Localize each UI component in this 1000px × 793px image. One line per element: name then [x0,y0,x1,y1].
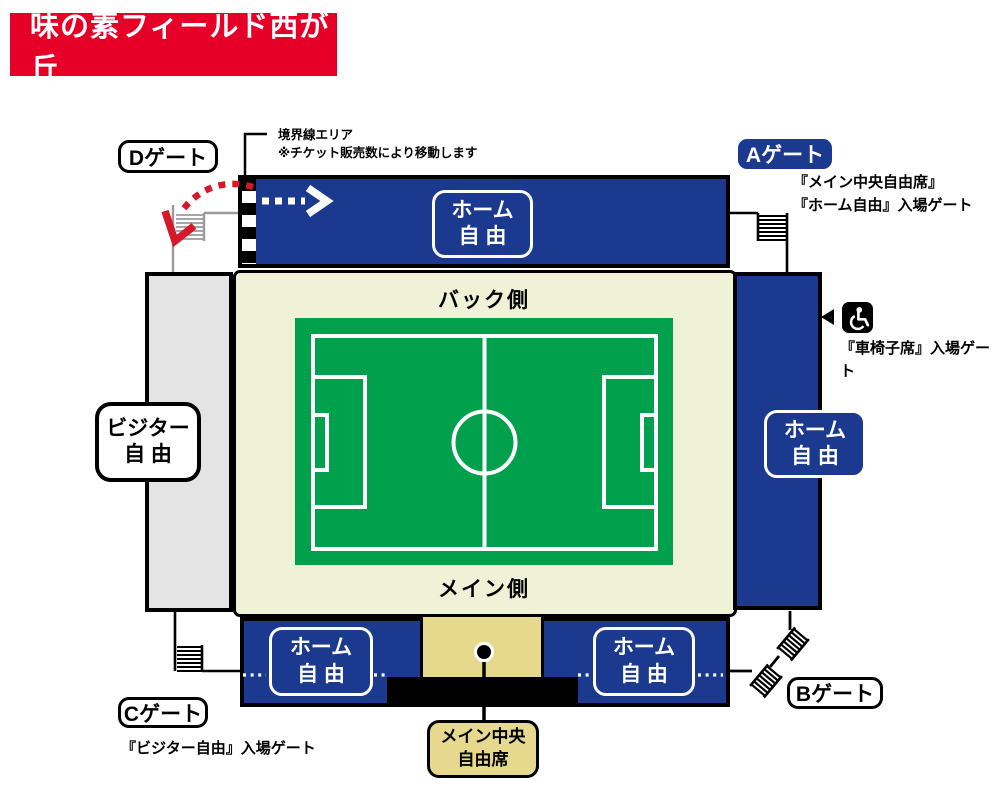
gate-a-stairs-icon [730,213,787,272]
seat-label-home-back: ホーム 自 由 [432,190,533,258]
boundary-checker-strip [242,179,256,264]
seat-label-home-right: ホーム 自 由 [764,410,866,478]
back-side-label: バック側 [284,284,684,314]
seat-label-visitor: ビジター 自 由 [95,402,201,482]
stadium-seat-map: 味の素フィールド西が丘 バック側 メイン側 ホーム 自 由 ホーム 自 由 ビジ… [0,0,1000,793]
gate-c-stairs-icon [175,612,240,671]
main-stand-center-block [387,677,578,707]
wheelchair-icon [842,302,873,333]
seat-label-home-bottom-right: ホーム 自 由 [593,627,695,696]
gate-d-stairs-icon [173,205,238,272]
gate-c-note: 『ビジター自由』入場ゲート [121,737,316,760]
soccer-pitch [295,318,673,565]
boundary-note-leader-line [245,134,267,175]
main-side-label: メイン側 [284,573,684,603]
seat-label-main-center: メイン中央 自由席 [427,720,539,778]
gate-b-label: Bゲート [787,677,883,709]
wheelchair-pointer-icon [821,309,834,325]
gate-d-label: Dゲート [118,140,218,173]
gate-c-label: Cゲート [118,697,208,728]
wheelchair-gate-note: 『車椅子席』入場ゲート [840,337,1000,384]
gate-a-note: 『メイン中央自由席』 『ホーム自由』入場ゲート [793,171,973,218]
seat-label-home-bottom-left: ホーム 自 由 [269,627,373,696]
gate-a-label: Aゲート [738,139,832,169]
boundary-area-note: 境界線エリア ※チケット販売数により移動します [278,126,477,162]
main-center-seat-area [420,617,544,677]
page-title: 味の素フィールド西が丘 [10,13,337,76]
